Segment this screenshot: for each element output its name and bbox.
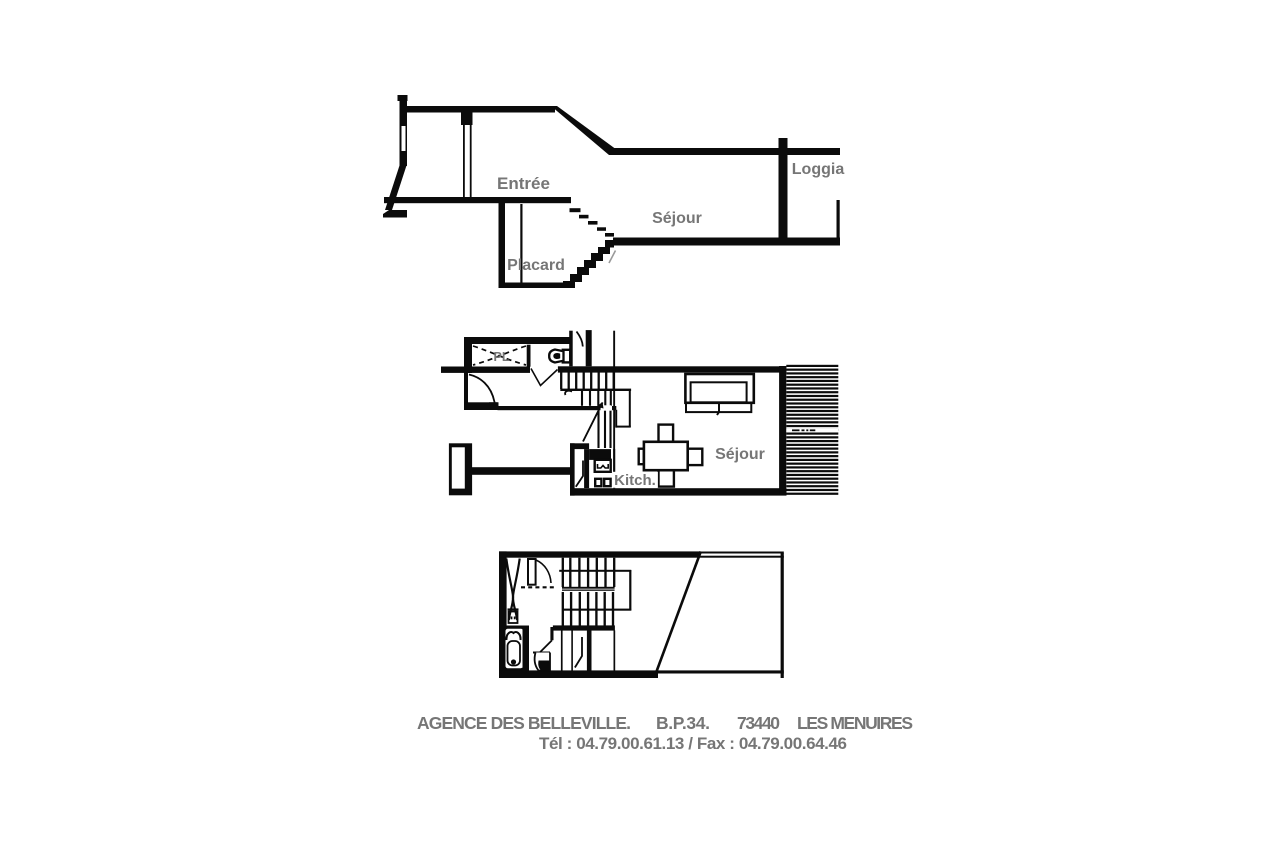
svg-text:Placard: Placard [507,257,565,274]
svg-text:73440: 73440 [737,713,780,733]
svg-text:Loggia: Loggia [792,161,845,178]
svg-text:AGENCE DES BELLEVILLE.: AGENCE DES BELLEVILLE. [417,713,631,733]
svg-text:Kitch.: Kitch. [614,472,656,489]
svg-text:Séjour: Séjour [652,210,702,227]
svg-text:Séjour: Séjour [715,446,765,463]
svg-text:Tél : 04.79.00.61.13 / Fax : 0: Tél : 04.79.00.61.13 / Fax : 04.79.00.64… [539,734,847,753]
svg-text:Entrée: Entrée [497,174,550,193]
svg-text:PL: PL [494,350,510,364]
svg-text:B.P.34.: B.P.34. [656,713,710,733]
svg-text:LES MENUIRES: LES MENUIRES [797,713,913,733]
